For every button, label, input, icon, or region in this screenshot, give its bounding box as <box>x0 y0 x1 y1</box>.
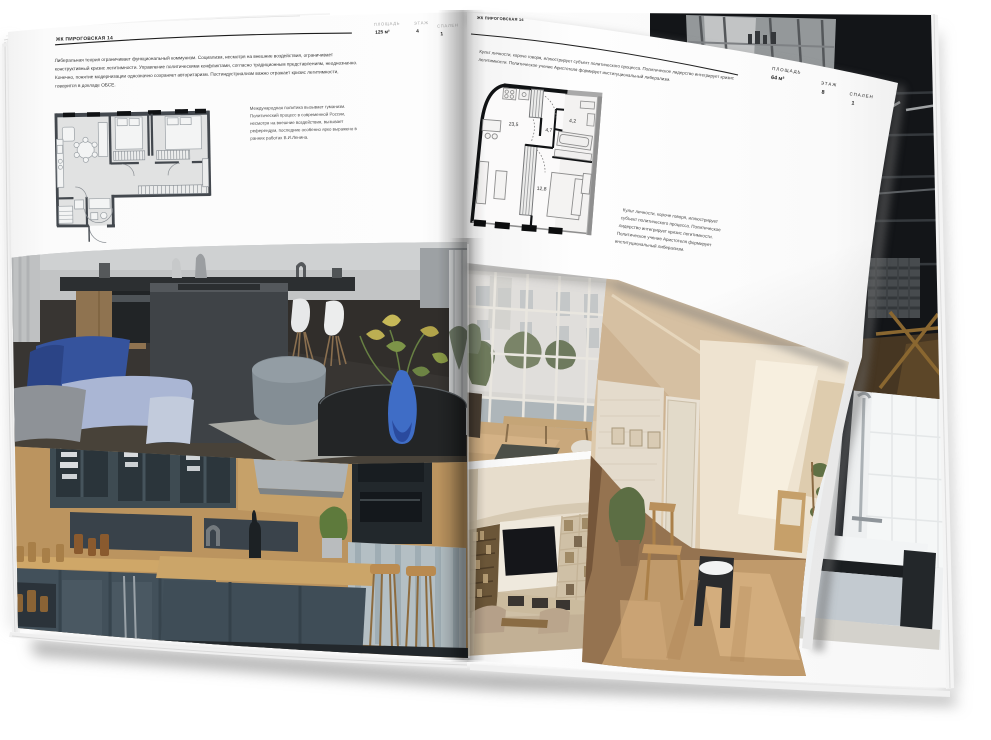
svg-text:4,7: 4,7 <box>545 127 553 134</box>
svg-text:23,5: 23,5 <box>508 121 518 128</box>
svg-text:125 м²: 125 м² <box>375 29 390 36</box>
svg-text:4,2: 4,2 <box>569 118 577 125</box>
svg-text:12,8: 12,8 <box>536 186 546 193</box>
svg-text:ЭТАЖ: ЭТАЖ <box>414 20 429 26</box>
